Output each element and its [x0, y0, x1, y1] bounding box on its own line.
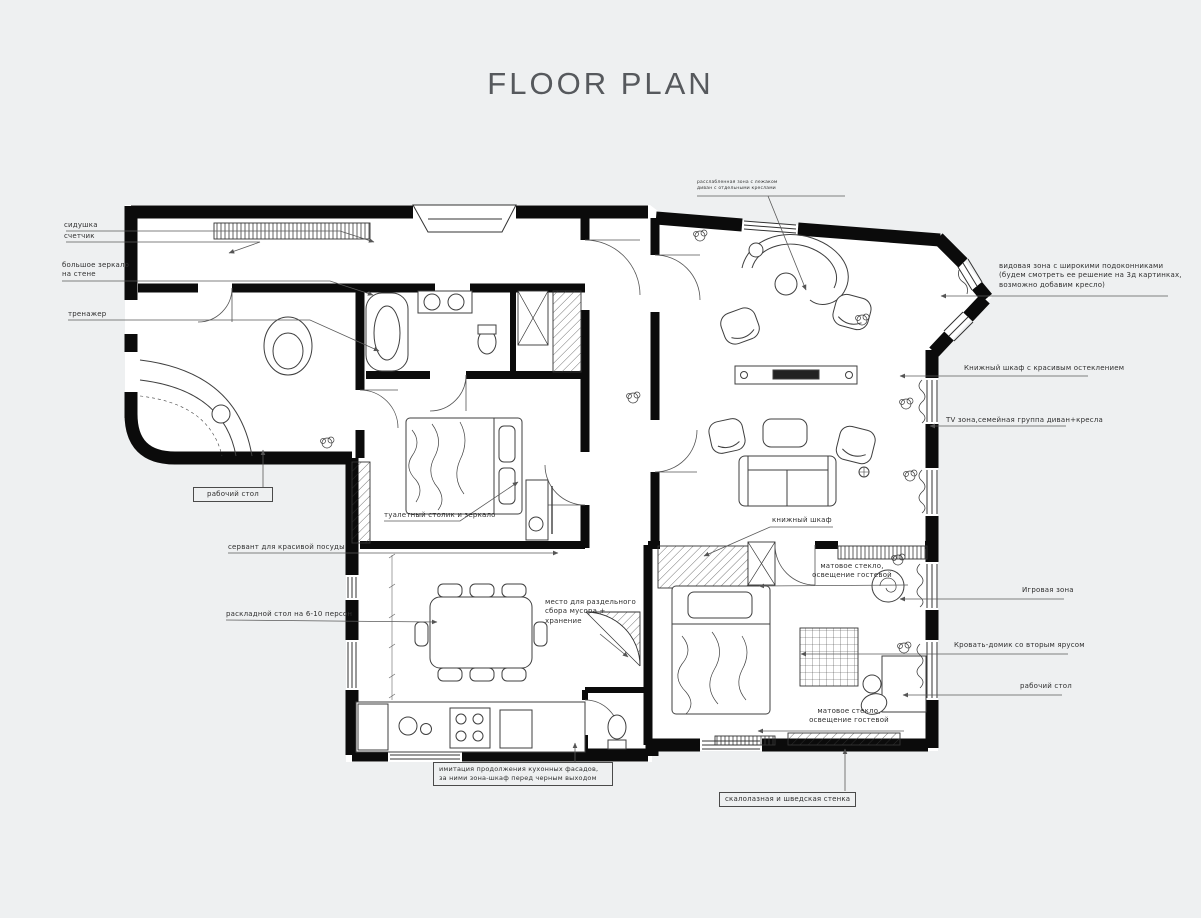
label-seat: сидушка: [64, 221, 98, 230]
label-tv-zone: TV зона,семейная группа диван+кресла: [946, 416, 1103, 425]
label-kitchen-facade: имитация продолжения кухонных фасадов, з…: [433, 762, 613, 786]
floor-plan-page: FLOOR PLAN: [0, 0, 1201, 918]
label-vanity: туалетный столик и зеркало: [384, 511, 496, 520]
label-frosted-bottom: матовое стекло, освещение гостевой: [793, 707, 905, 726]
label-play-zone: Игровая зона: [1022, 586, 1074, 595]
label-trainer: тренажер: [68, 310, 106, 319]
label-meter: счетчик: [64, 232, 95, 241]
label-lounge-note: расслабленная зона с лежаком диван с отд…: [697, 180, 817, 193]
label-waste: место для раздельного сбора мусора + хра…: [545, 598, 660, 626]
label-bookcase-small: книжный шкаф: [772, 516, 832, 525]
label-mirror: большое зеркало на стене: [62, 261, 129, 280]
label-view-zone: видовая зона с широкими подоконниками (б…: [999, 262, 1199, 290]
label-desk-right: рабочий стол: [1020, 682, 1072, 691]
label-servant: сервант для красивой посуды: [228, 543, 345, 552]
label-desk-left: рабочий стол: [193, 487, 273, 502]
label-folding-table: раскладной стол на 6-10 персон: [226, 610, 352, 619]
label-frosted-top: матовое стекло, освещение гостевой: [796, 562, 908, 581]
label-bookcase-right: Книжный шкаф с красивым остеклением: [964, 364, 1124, 373]
label-climbing: скалолазная и шведская стенка: [719, 792, 856, 807]
label-bed-house: Кровать-домик со вторым ярусом: [954, 641, 1085, 650]
